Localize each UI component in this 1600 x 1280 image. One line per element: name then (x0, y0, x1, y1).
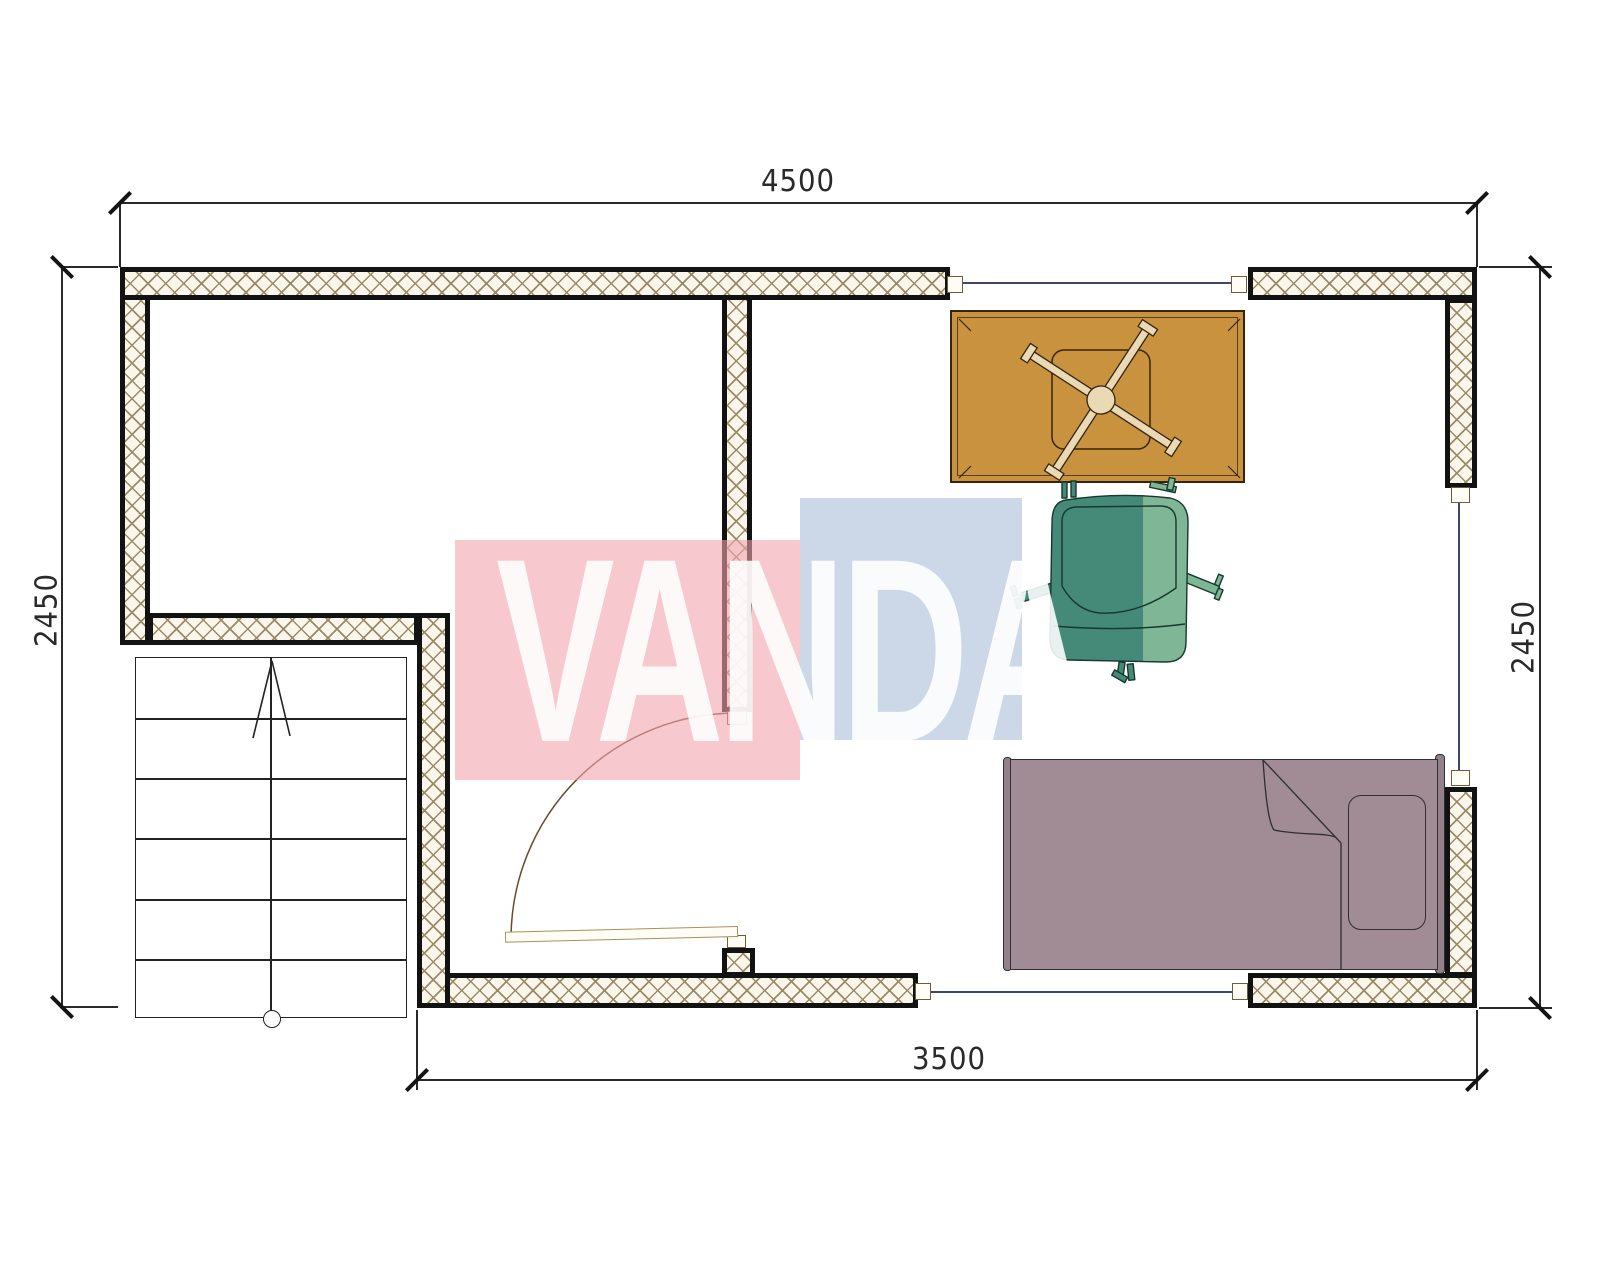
blanket-fold (1003, 753, 1445, 975)
extension-line (62, 1006, 118, 1008)
wall-corridor-vertical (417, 613, 450, 1008)
door-leaf (505, 926, 738, 943)
window-marker (1232, 983, 1248, 1000)
table (950, 310, 1245, 483)
watermark-blue-block (800, 498, 1022, 740)
armchair-icon (1038, 478, 1224, 686)
stair-start-circle (263, 1010, 281, 1028)
dimension-line (417, 1079, 1477, 1081)
dimension-label-bottom: 3500 (912, 1042, 986, 1077)
window-line-top (963, 282, 1233, 284)
dimension-label-right: 2450 (1507, 600, 1542, 674)
window-marker (947, 276, 963, 293)
wall-top-left (120, 267, 950, 300)
wall-corridor-horizontal (148, 613, 419, 645)
wall-bottom-right (1248, 973, 1477, 1008)
wall-right-lower (1445, 787, 1477, 977)
window-marker (1451, 770, 1470, 786)
stair-direction-arrow (136, 658, 408, 1019)
wall-left (120, 295, 150, 645)
staircase (135, 657, 407, 1018)
wall-right-upper (1445, 298, 1477, 488)
window-marker (1231, 276, 1247, 293)
watermark-text: VANDA (496, 520, 1085, 782)
dimension-line (120, 202, 1477, 204)
extension-line (62, 266, 118, 268)
window-line-bottom (931, 991, 1233, 993)
dimension-label-top: 4500 (761, 164, 835, 199)
dimension-label-left: 2450 (30, 573, 65, 647)
wall-top-right (1248, 267, 1477, 300)
wall-bottom-left (417, 973, 918, 1008)
window-marker (915, 983, 931, 1000)
floor-plan-canvas: 4500 3500 2450 2450 (0, 0, 1600, 1280)
wall-interior-partition (722, 295, 752, 712)
extension-line (1476, 204, 1478, 267)
extension-line (119, 204, 121, 267)
door-jamb-marker (727, 711, 747, 725)
wall-door-stub (722, 948, 755, 977)
table-base-icon (952, 312, 1247, 485)
window-line-right (1458, 503, 1460, 771)
window-marker (1451, 487, 1470, 503)
bed (1003, 753, 1445, 975)
armchair (1038, 478, 1224, 686)
